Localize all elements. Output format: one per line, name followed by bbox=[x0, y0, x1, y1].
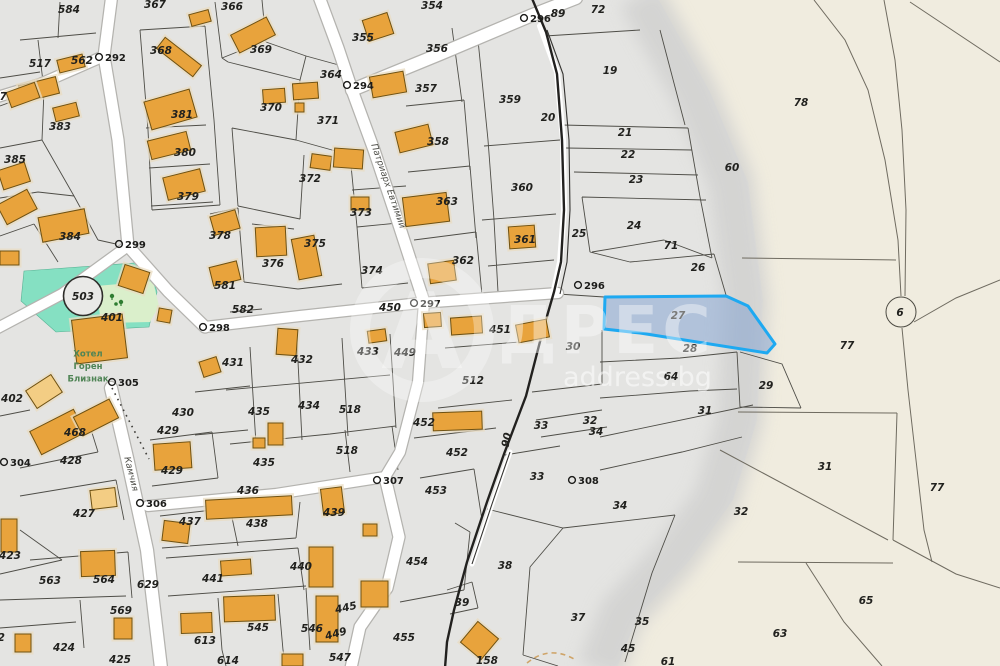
parcel-label: 375 bbox=[304, 238, 326, 250]
parcel-label: 39 bbox=[455, 597, 470, 609]
parcel-label: 34 bbox=[589, 426, 604, 438]
building bbox=[268, 423, 283, 445]
parcel-label: 380 bbox=[174, 147, 196, 159]
parcel-label: 371 bbox=[317, 115, 339, 127]
building bbox=[253, 438, 265, 448]
parcel-label: 454 bbox=[405, 556, 428, 568]
building bbox=[114, 618, 132, 639]
building bbox=[206, 496, 293, 519]
parcel-label: 358 bbox=[427, 136, 449, 148]
svg-text:А: А bbox=[381, 271, 462, 393]
parcel-label: 24 bbox=[627, 220, 642, 232]
parcel-label: 378 bbox=[209, 230, 231, 242]
svg-text:ДРЕС: ДРЕС bbox=[498, 292, 715, 369]
building bbox=[157, 308, 172, 323]
parcel-label: 582 bbox=[232, 304, 254, 316]
building bbox=[292, 82, 318, 100]
geodetic-marker-label: 296 bbox=[530, 14, 551, 25]
parcel-label: 158 bbox=[476, 655, 498, 666]
building bbox=[81, 550, 116, 576]
parcel-label: 381 bbox=[171, 109, 193, 121]
parcel-label: 63 bbox=[773, 628, 788, 640]
parcel-label: 368 bbox=[150, 45, 172, 57]
parcel-label: 430 bbox=[171, 407, 194, 419]
parcel-label: 33 bbox=[534, 420, 549, 432]
parcel-label: 383 bbox=[49, 121, 71, 133]
building bbox=[224, 595, 276, 622]
building bbox=[276, 328, 298, 355]
parcel-label: 71 bbox=[664, 240, 679, 252]
parcel-label: 435 bbox=[252, 457, 275, 469]
parcel-label: 581 bbox=[214, 280, 236, 292]
parcel-label: 629 bbox=[137, 579, 159, 591]
geodetic-marker-label: 306 bbox=[146, 499, 167, 510]
parcel-label: 376 bbox=[262, 258, 284, 270]
parcel-label: 423 bbox=[0, 550, 21, 562]
parcel-label: 546 bbox=[301, 623, 323, 635]
parcel-label: 437 bbox=[178, 516, 202, 528]
parcel-label: 77 bbox=[930, 482, 945, 494]
building bbox=[15, 634, 31, 652]
map-viewport[interactable]: 503 6 ХотелГоренБлизнак 5843673663693553… bbox=[0, 0, 1000, 666]
poi-label-line: Горен bbox=[74, 362, 103, 372]
building bbox=[309, 547, 333, 587]
parcel-label: 432 bbox=[290, 354, 313, 366]
landmark-503: 503 bbox=[64, 277, 103, 316]
parcel-label: 367 bbox=[144, 0, 167, 11]
building bbox=[221, 559, 252, 576]
parcel-label: 452 bbox=[445, 447, 468, 459]
parcel-label: 569 bbox=[110, 605, 132, 617]
parcel-label: 453 bbox=[424, 485, 447, 497]
parcel-label: 438 bbox=[245, 518, 268, 530]
building bbox=[0, 251, 19, 265]
parcel-label: 372 bbox=[299, 173, 321, 185]
parcel-label: 61 bbox=[661, 656, 676, 666]
building bbox=[363, 524, 377, 536]
parcel-label: 362 bbox=[452, 255, 474, 267]
parcel-label: 379 bbox=[177, 191, 199, 203]
parcel-label: 518 bbox=[339, 404, 361, 416]
parcel-label: 89 bbox=[551, 8, 566, 20]
parcel-label: 547 bbox=[329, 652, 352, 664]
parcel-label: 32 bbox=[734, 506, 749, 518]
parcel-label: 31 bbox=[818, 461, 833, 473]
parcel-label: 455 bbox=[392, 632, 415, 644]
geodetic-marker-label: 294 bbox=[353, 81, 374, 92]
parcel-label: 441 bbox=[201, 573, 224, 585]
parcel-label: 78 bbox=[794, 97, 809, 109]
parcel-label: 384 bbox=[59, 231, 81, 243]
building bbox=[90, 488, 117, 510]
building bbox=[310, 154, 332, 171]
poi-label-line: Хотел bbox=[73, 350, 102, 360]
geodetic-marker-label: 308 bbox=[578, 476, 599, 487]
parcel-label: 77 bbox=[840, 340, 855, 352]
parcel-label: 355 bbox=[352, 32, 374, 44]
building bbox=[282, 654, 303, 666]
parcel-label: 26 bbox=[691, 262, 706, 274]
geodetic-marker-label: 304 bbox=[10, 458, 31, 469]
parcel-label: 401 bbox=[100, 312, 123, 324]
parcel-label: 21 bbox=[618, 127, 633, 139]
parcel-label: 33 bbox=[530, 471, 545, 483]
parcel-label: 354 bbox=[421, 0, 443, 12]
parcel-label: 23 bbox=[629, 174, 644, 186]
parcel-label: 613 bbox=[194, 635, 216, 647]
parcel-label: 614 bbox=[217, 655, 239, 666]
parcel-label: 431 bbox=[221, 357, 244, 369]
parcel-label: 429 bbox=[156, 425, 179, 437]
building bbox=[181, 612, 213, 633]
parcel-label: 25 bbox=[572, 228, 587, 240]
parcel-label: 387 bbox=[0, 91, 8, 103]
parcel-label: 370 bbox=[260, 102, 282, 114]
parcel-label: 518 bbox=[336, 445, 358, 457]
svg-text:6: 6 bbox=[896, 307, 903, 319]
parcel-label: 359 bbox=[499, 94, 521, 106]
building bbox=[361, 581, 388, 607]
parcel-label: 360 bbox=[511, 182, 533, 194]
geodetic-marker-label: 307 bbox=[383, 476, 404, 487]
parcel-label: 402 bbox=[0, 632, 5, 644]
parcel-label: 363 bbox=[436, 196, 458, 208]
geodetic-marker-label: 298 bbox=[209, 323, 230, 334]
parcel-label: 563 bbox=[39, 575, 61, 587]
building bbox=[295, 103, 304, 112]
parcel-label: 38 bbox=[498, 560, 513, 572]
geodetic-marker-label: 296 bbox=[584, 281, 605, 292]
parcel-label: 20 bbox=[541, 112, 556, 124]
parcel-label: 385 bbox=[4, 154, 26, 166]
parcel-label: 364 bbox=[320, 69, 342, 81]
parcel-label: 35 bbox=[635, 616, 650, 628]
parcel-label: 72 bbox=[591, 4, 606, 16]
parcel-label: 517 bbox=[29, 58, 52, 70]
parcel-label: 564 bbox=[93, 574, 115, 586]
building bbox=[333, 148, 363, 169]
parcel-label: 361 bbox=[514, 234, 536, 246]
parcel-label: 373 bbox=[350, 207, 372, 219]
building bbox=[1, 519, 17, 552]
parcel-label: 436 bbox=[236, 485, 259, 497]
parcel-label: 468 bbox=[63, 427, 86, 439]
parcel-label: 545 bbox=[247, 622, 269, 634]
parcel-label: 366 bbox=[221, 1, 243, 13]
parcel-label: 440 bbox=[289, 561, 312, 573]
parcel-label: 425 bbox=[108, 654, 131, 666]
parcel-label: 37 bbox=[571, 612, 586, 624]
parcel-label: 434 bbox=[297, 400, 320, 412]
geodetic-marker-label: 292 bbox=[105, 53, 126, 64]
parcel-label: 439 bbox=[322, 507, 345, 519]
parcel-label: 356 bbox=[426, 43, 448, 55]
parcel-label: 424 bbox=[52, 642, 75, 654]
svg-text:503: 503 bbox=[72, 291, 94, 303]
parcel-label: 369 bbox=[250, 44, 272, 56]
parcel-label: 428 bbox=[59, 455, 82, 467]
parcel-label: 357 bbox=[415, 83, 438, 95]
parcel-label: 562 bbox=[71, 55, 93, 67]
parcel-label: 402 bbox=[0, 393, 23, 405]
svg-text:address.bg: address.bg bbox=[563, 362, 712, 393]
parcel-label: 31 bbox=[698, 405, 713, 417]
cadastral-map[interactable]: 503 6 ХотелГоренБлизнак 5843673663693553… bbox=[0, 0, 1000, 666]
parcel-label: 429 bbox=[160, 465, 183, 477]
geodetic-marker-label: 299 bbox=[125, 240, 146, 251]
parcel-label: 452 bbox=[412, 417, 435, 429]
parcel-label: 45 bbox=[620, 643, 636, 655]
parcel-label: 427 bbox=[72, 508, 96, 520]
parcel-label: 22 bbox=[621, 149, 636, 161]
building bbox=[255, 226, 286, 257]
geodetic-marker-label: 305 bbox=[118, 378, 139, 389]
building bbox=[433, 411, 483, 431]
parcel-label: 29 bbox=[759, 380, 774, 392]
parcel-label: 34 bbox=[613, 500, 628, 512]
parcel-label: 19 bbox=[603, 65, 618, 77]
poi-label-line: Близнак bbox=[68, 375, 109, 385]
parcel-label: 584 bbox=[58, 4, 80, 16]
parcel-label: 435 bbox=[247, 406, 270, 418]
parcel-label: 60 bbox=[725, 162, 740, 174]
parcel-label: 65 bbox=[859, 595, 874, 607]
